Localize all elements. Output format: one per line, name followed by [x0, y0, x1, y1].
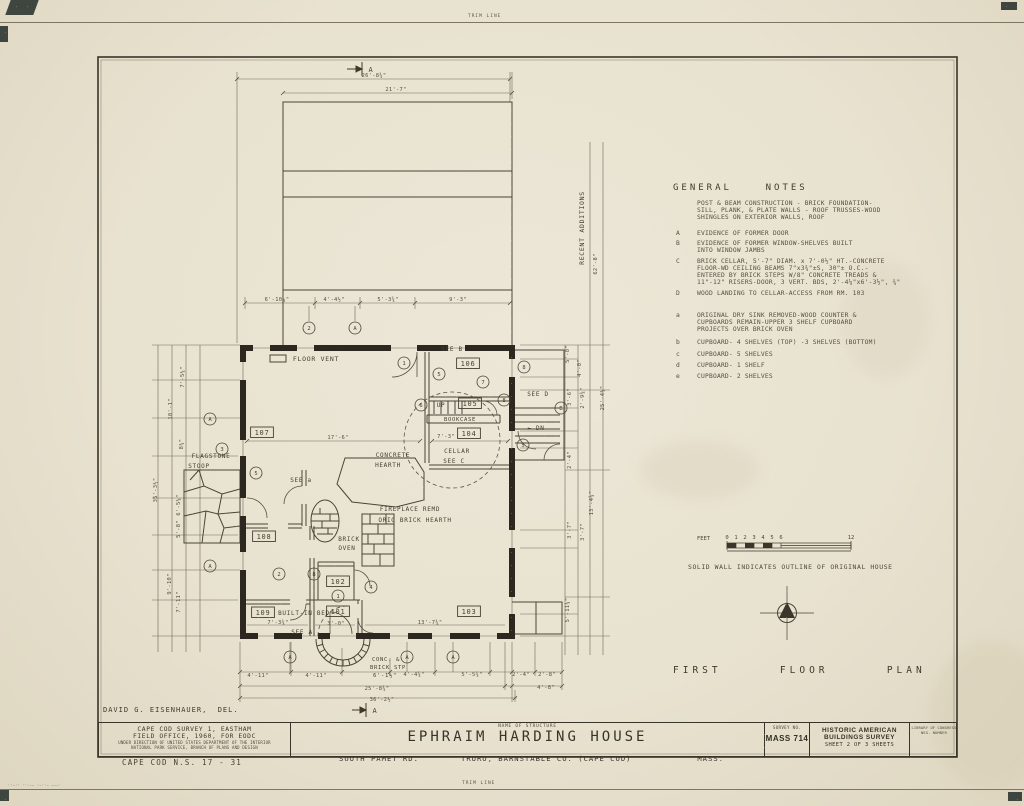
dim-label: 35'-3½": [152, 478, 159, 503]
plan-label: CELLAR: [444, 448, 470, 455]
dim-label: 4'-0": [577, 359, 583, 377]
survey-file-number: CAPE COD N.S. 17 - 31: [122, 758, 242, 767]
dim-label: 4'-11": [305, 673, 326, 679]
plan-label: 6'-1½": [373, 672, 397, 679]
dim-label: 5'-11¾": [565, 598, 571, 623]
structure-name: EPHRAIM HARDING HOUSE: [291, 729, 764, 745]
sheet-border: [98, 57, 957, 757]
reference-number: A: [288, 655, 292, 661]
plan-label: BOOKCASE: [444, 417, 476, 423]
title-block-office: CAPE COD SURVEY 1, EASTHAM FIELD OFFICE,…: [99, 723, 291, 756]
scale-tick: 4: [761, 535, 765, 541]
reference-number: 7: [481, 380, 484, 386]
reference-number: 2: [307, 326, 310, 332]
dim-label: 13'-7¾": [418, 620, 443, 626]
plan-label: SEE D: [527, 391, 549, 398]
section-marker-arrows: [347, 62, 366, 717]
plan-title: FIRST FLOOR PLAN: [673, 665, 926, 676]
dim-label: 25'-8¾": [365, 686, 390, 692]
scale-tick: 5: [770, 535, 773, 541]
exterior-walls: [240, 345, 515, 639]
note-item: CBRICK CELLAR, 5'-7" DIAM. x 7'-0½" HT.-…: [676, 258, 934, 286]
plan-label: SEE B: [441, 346, 463, 353]
dim-label: 8¼": [179, 439, 185, 450]
dim-label: 6'-5¼": [176, 494, 182, 515]
note-text: WOOD LANDING TO CELLAR-ACCESS FROM RM. 1…: [697, 290, 865, 297]
note-item: eCUPBOARD- 2 SHELVES: [676, 373, 934, 380]
dim-label: 3'-7": [580, 523, 586, 541]
dim-label: 4'-4½": [323, 296, 344, 303]
plan-label: 106: [461, 360, 476, 368]
delineator-credit: DAVID G. EISENHAUER, DEL.: [103, 706, 239, 714]
dim-label: 3'-6": [567, 388, 573, 406]
reference-number: 1: [336, 594, 339, 600]
dim-label: 62'-8": [593, 253, 599, 274]
plan-label: CONC. &: [372, 657, 400, 663]
address-road: SOUTH PAMET RD.: [339, 754, 419, 763]
dim-label: 2'-9¾": [580, 387, 586, 408]
note-key: C: [676, 258, 697, 286]
note-text: CUPBOARD- 5 SHELVES: [697, 351, 773, 358]
plan-label: OVEN: [338, 545, 355, 552]
note-key: A: [676, 230, 697, 237]
plan-label: CONCRETE: [376, 452, 411, 459]
plan-label: 104: [462, 430, 477, 438]
note-item: DWOOD LANDING TO CELLAR-ACCESS FROM RM. …: [676, 290, 934, 297]
plan-label: ← DN: [527, 425, 544, 432]
dim-label: 3'-0": [327, 621, 345, 627]
dim-label: 2'-8": [538, 672, 556, 678]
dim-label: 5'-8": [176, 520, 182, 538]
dimension-lines: [152, 72, 610, 702]
dim-label: 21'-7": [385, 87, 406, 93]
office-line: FIELD OFFICE, 1960, FOR EODC: [99, 733, 290, 740]
dim-label: 36'-2½": [370, 696, 395, 703]
plan-label: 101: [331, 608, 346, 616]
note-key: c: [676, 351, 697, 358]
dim-label: 5'-5¾": [461, 672, 482, 678]
dim-label: 13'-4¾": [589, 491, 595, 516]
scale-tick: 0: [725, 535, 728, 541]
plan-label: 109: [256, 609, 271, 617]
habs-line: BUILDINGS SURVEY: [810, 734, 909, 741]
plan-label: FIREPLACE REMD: [380, 506, 440, 513]
library-line: NEG. NUMBER: [910, 731, 958, 735]
address-state: MASS.: [697, 754, 724, 763]
dim-label: 6'-10¼": [265, 297, 290, 303]
note-text: EVIDENCE OF FORMER DOOR: [697, 230, 789, 237]
note-key: a: [676, 312, 697, 333]
dim-label: 5'-0": [565, 345, 571, 363]
reference-number: 8: [502, 398, 505, 404]
note-text: ORIGINAL DRY SINK REMOVED-WOOD COUNTER &…: [697, 312, 857, 333]
reference-number: 1: [402, 361, 405, 367]
reference-number: 3: [220, 447, 223, 453]
dim-label: 7'-11": [176, 591, 182, 612]
note-key: d: [676, 362, 697, 369]
dim-label: 4'-4¾": [403, 672, 424, 678]
plan-label: A: [369, 66, 374, 74]
office-line: CAPE COD SURVEY 1, EASTHAM: [99, 726, 290, 733]
note-key: B: [676, 240, 697, 254]
plan-label: 107: [255, 429, 270, 437]
note-item: aORIGINAL DRY SINK REMOVED-WOOD COUNTER …: [676, 312, 934, 333]
note-key: b: [676, 339, 697, 346]
library-line: LIBRARY OF CONGRESS: [910, 726, 958, 730]
reference-number: 5: [437, 372, 440, 378]
note-text: EVIDENCE OF FORMER WINDOW-SHELVES BUILT …: [697, 240, 853, 254]
dim-label: 7'-3": [437, 434, 455, 440]
scale-tick: 12: [848, 535, 855, 541]
general-notes-intro: POST & BEAM CONSTRUCTION - BRICK FOUNDAT…: [697, 200, 937, 221]
plan-label: SEE C: [443, 458, 465, 465]
dim-label: 4'-11": [247, 673, 268, 679]
note-text: CUPBOARD- 2 SHELVES: [697, 373, 773, 380]
survey-no-label: SURVEY NO.: [765, 725, 809, 730]
wall-legend-note: SOLID WALL INDICATES OUTLINE OF ORIGINAL…: [688, 563, 893, 571]
scale-tick: 6: [779, 535, 782, 541]
dim-label: 9'-3": [449, 297, 467, 303]
reference-number: A: [405, 655, 409, 661]
title-block-survey-no: SURVEY NO. MASS 714: [764, 723, 809, 756]
reference-number: 8: [312, 572, 315, 578]
note-item: bCUPBOARD- 4 SHELVES (TOP) -3 SHELVES (B…: [676, 339, 934, 346]
note-text: BRICK CELLAR, 5'-7" DIAM. x 7'-0½" HT.-C…: [697, 258, 901, 286]
reference-number: B: [559, 406, 563, 412]
note-item: AEVIDENCE OF FORMER DOOR: [676, 230, 934, 237]
floor-plan-drawing: FEET 0 1 2 3 4 5 6 12 26'-8¾"21'-7"6'-10…: [0, 0, 1024, 806]
scale-bar: FEET 0 1 2 3 4 5 6 12: [697, 535, 854, 551]
plan-label: 103: [462, 608, 477, 616]
north-arrow-icon: [760, 586, 814, 640]
reference-number: A: [353, 326, 357, 332]
title-block-habs: HISTORIC AMERICAN BUILDINGS SURVEY SHEET…: [809, 723, 909, 756]
reference-number: 5: [254, 471, 257, 477]
scale-tick: 2: [743, 535, 746, 541]
dim-label: 7'-3¾": [267, 620, 288, 626]
note-text: CUPBOARD- 4 SHELVES (TOP) -3 SHELVES (BO…: [697, 339, 877, 346]
plan-label: 108: [257, 533, 272, 541]
note-text: CUPBOARD- 1 SHELF: [697, 362, 765, 369]
plan-label: STOOP: [188, 463, 210, 470]
reference-number: 5: [521, 443, 524, 449]
reference-number: 8: [522, 365, 525, 371]
cellar-dashed-outline: [318, 392, 500, 636]
plan-label: BUILT-IN BED: [278, 610, 330, 617]
dim-label: 2'-4": [567, 451, 573, 469]
plan-label: UP: [437, 402, 446, 409]
office-direction-line: NATIONAL PARK SERVICE, BRANCH OF PLANS A…: [104, 745, 285, 750]
plan-label: ORIG BRICK HEARTH: [378, 517, 451, 524]
address-town: TRURO, BARNSTABLE CO. (CAPE COD): [461, 754, 631, 763]
habs-line: HISTORIC AMERICAN: [810, 727, 909, 734]
plan-label: BRICK: [338, 536, 360, 543]
title-block-library: LIBRARY OF CONGRESS NEG. NUMBER: [909, 723, 958, 756]
dim-label: 3'-7": [567, 521, 573, 539]
reference-number: A: [208, 564, 212, 570]
dim-label: 5'-3¾": [377, 297, 398, 303]
note-item: cCUPBOARD- 5 SHELVES: [676, 351, 934, 358]
plan-label: SEE A: [291, 629, 313, 636]
plan-label: RECENT ADDITIONS: [578, 191, 586, 265]
note-key: e: [676, 373, 697, 380]
title-block: CAPE COD SURVEY 1, EASTHAM FIELD OFFICE,…: [98, 722, 957, 757]
scale-tick: 1: [734, 535, 737, 541]
reference-number: 4: [369, 585, 373, 591]
scale-unit-label: FEET: [697, 536, 711, 542]
plan-labels: FLOOR VENTSEE B106UP105BOOKCASE104SEE D←…: [188, 66, 586, 715]
dimension-labels: 26'-8¾"21'-7"6'-10¼"4'-4½"5'-3¾"9'-3"7'-…: [152, 73, 606, 703]
dim-label: 17'-6": [327, 435, 348, 441]
plan-label: BRICK STP: [370, 665, 406, 671]
dim-label: 26'-8¾": [362, 73, 387, 79]
note-key: D: [676, 290, 697, 297]
scale-tick: 3: [752, 535, 755, 541]
reference-number: 2: [277, 572, 280, 578]
note-item: BEVIDENCE OF FORMER WINDOW-SHELVES BUILT…: [676, 240, 934, 254]
plan-label: 102: [331, 578, 346, 586]
note-item: dCUPBOARD- 1 SHELF: [676, 362, 934, 369]
title-block-structure: NAME OF STRUCTURE EPHRAIM HARDING HOUSE …: [291, 723, 764, 756]
plan-label: A: [373, 707, 378, 715]
plan-label: SEE a: [290, 477, 312, 484]
dim-label: 7'-5¼": [180, 366, 186, 387]
reference-number: 6: [419, 403, 422, 409]
general-notes-title: GENERAL NOTES: [673, 183, 808, 193]
dim-label: 2'-4": [512, 672, 530, 678]
plan-label: HEARTH: [375, 462, 401, 469]
dim-label: 9'-10": [167, 573, 173, 594]
survey-no-value: MASS 714: [765, 734, 809, 743]
plan-label: FLOOR VENT: [293, 355, 339, 363]
sheet-paper: TRIM LINE TRIM LINE ··–·· ···–– ·–··– ––…: [0, 0, 1024, 806]
plan-label: 105: [463, 400, 478, 408]
reference-number: A: [451, 655, 455, 661]
dim-label: 25'-4½": [599, 386, 606, 411]
dim-label: 10'-1": [168, 398, 174, 419]
dim-label: 4'-8": [537, 685, 555, 691]
habs-sheet-line: SHEET 2 OF 3 SHEETS: [810, 742, 909, 748]
